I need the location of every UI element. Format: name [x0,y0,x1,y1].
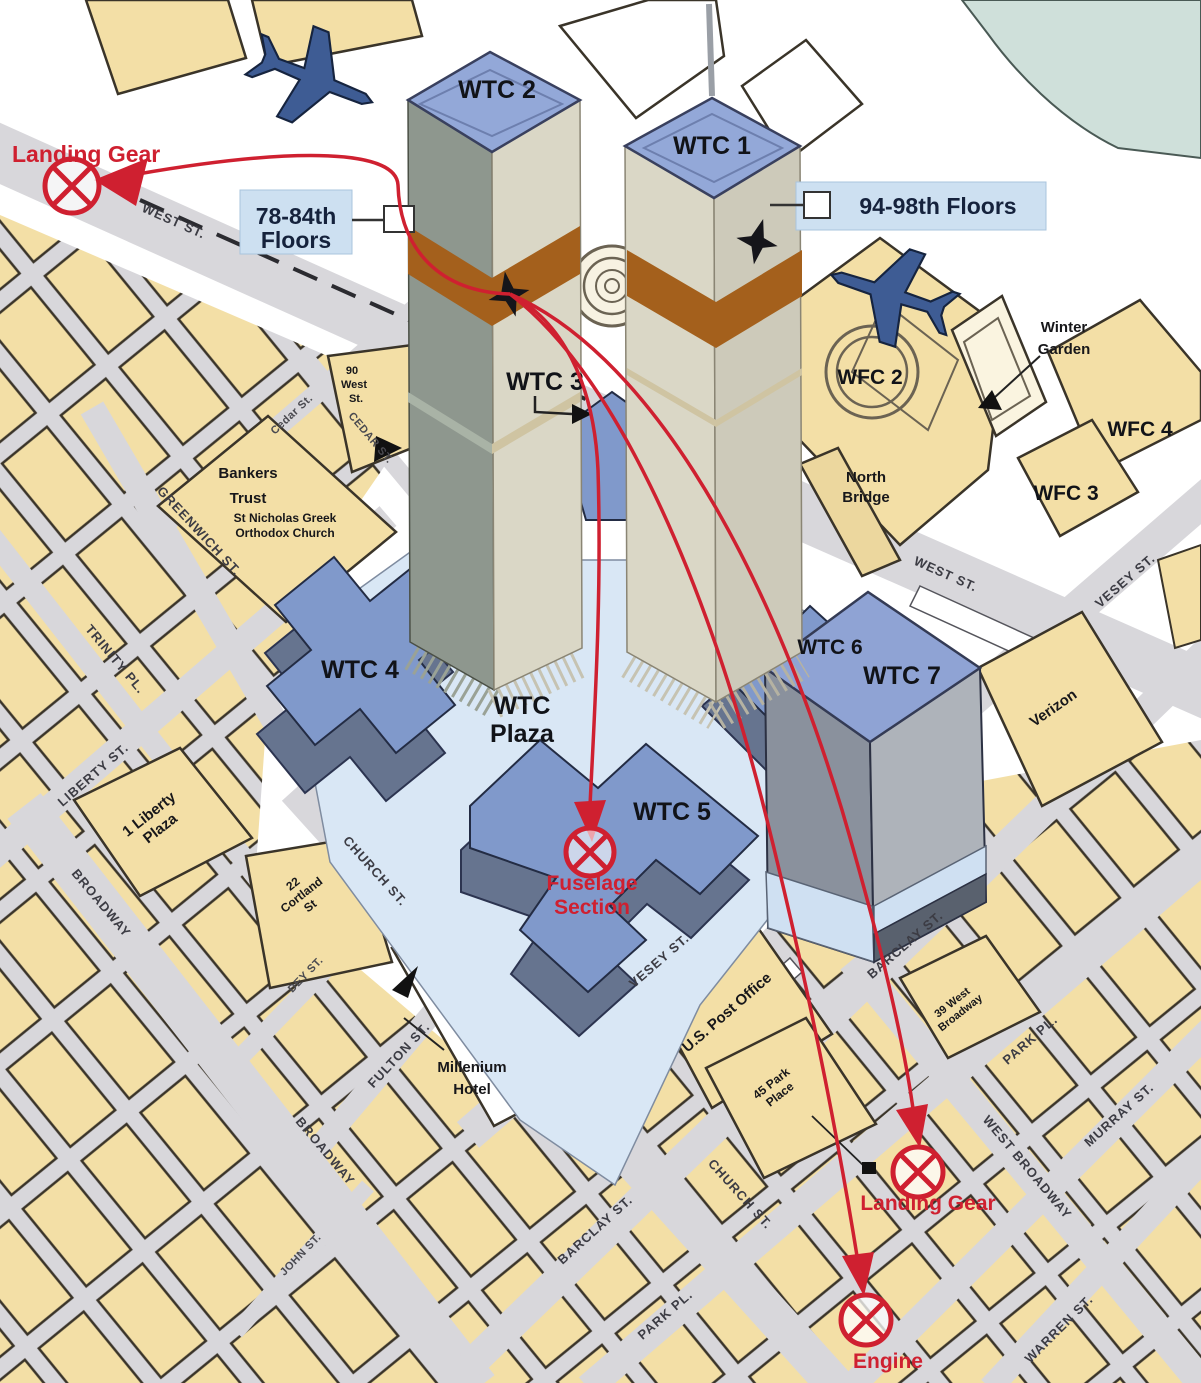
wtc1-label: WTC 1 [673,132,751,160]
wtc5-label: WTC 5 [633,798,711,826]
landing-gear-ne-label: Landing Gear [860,1192,995,1215]
st-nicholas-label-line1: St Nicholas Greek [234,511,337,525]
north-bridge-label-line1: North [846,469,886,486]
ninety-west-label-line3: St. [349,393,363,405]
wtc2-floors-label-line2: Floors [261,227,331,253]
wfc2-label: WFC 2 [837,366,902,389]
wfc3-label: WFC 3 [1033,482,1098,505]
ninety-west-label-line1: 90 [346,365,358,377]
millenium-label-line1: Millenium [437,1059,506,1076]
wtc7-label: WTC 7 [863,662,941,690]
wtc-impact-map: 78-84th Floors 94-98th Floors WTC 2 WTC … [0,0,1201,1383]
wtc6-label: WTC 6 [797,636,862,659]
wfc4-label: WFC 4 [1107,418,1173,441]
wtc1-floors-callout: 94-98th Floors [770,182,1046,230]
fuselage-label-line2: Section [554,896,630,919]
crash-marker-engine [841,1295,891,1345]
millenium-label-line2: Hotel [453,1081,491,1098]
park-place-dot [862,1162,876,1174]
winter-garden-label-line1: Winter [1041,319,1088,336]
wtc4-label: WTC 4 [321,656,399,684]
wtc-plaza-label-line2: Plaza [490,720,555,748]
wtc3-label: WTC 3 [506,368,584,396]
crash-marker-landing-gear-sw [45,159,99,213]
wtc2-floors-label-line1: 78-84th [256,203,337,229]
north-bridge-label-line2: Bridge [842,489,890,506]
st-nicholas-label-line2: Orthodox Church [235,526,334,540]
wtc2-label: WTC 2 [458,76,536,104]
landing-gear-sw-label: Landing Gear [12,141,160,167]
bankers-trust-label-line2: Trust [230,490,267,507]
crash-marker-landing-gear-ne [893,1147,943,1197]
wtc1-antenna [709,4,712,96]
wtc-plaza-label-line1: WTC [494,692,551,720]
fuselage-label-line1: Fuselage [546,872,637,895]
winter-garden-label-line2: Garden [1038,341,1091,358]
wtc1-floors-label: 94-98th Floors [859,193,1016,219]
bankers-trust-label-line1: Bankers [218,465,277,482]
engine-label: Engine [853,1350,923,1373]
ninety-west-label-line2: West [341,379,367,391]
map-canvas: 78-84th Floors 94-98th Floors WTC 2 WTC … [0,0,1201,1383]
crash-marker-fuselage [566,828,614,876]
